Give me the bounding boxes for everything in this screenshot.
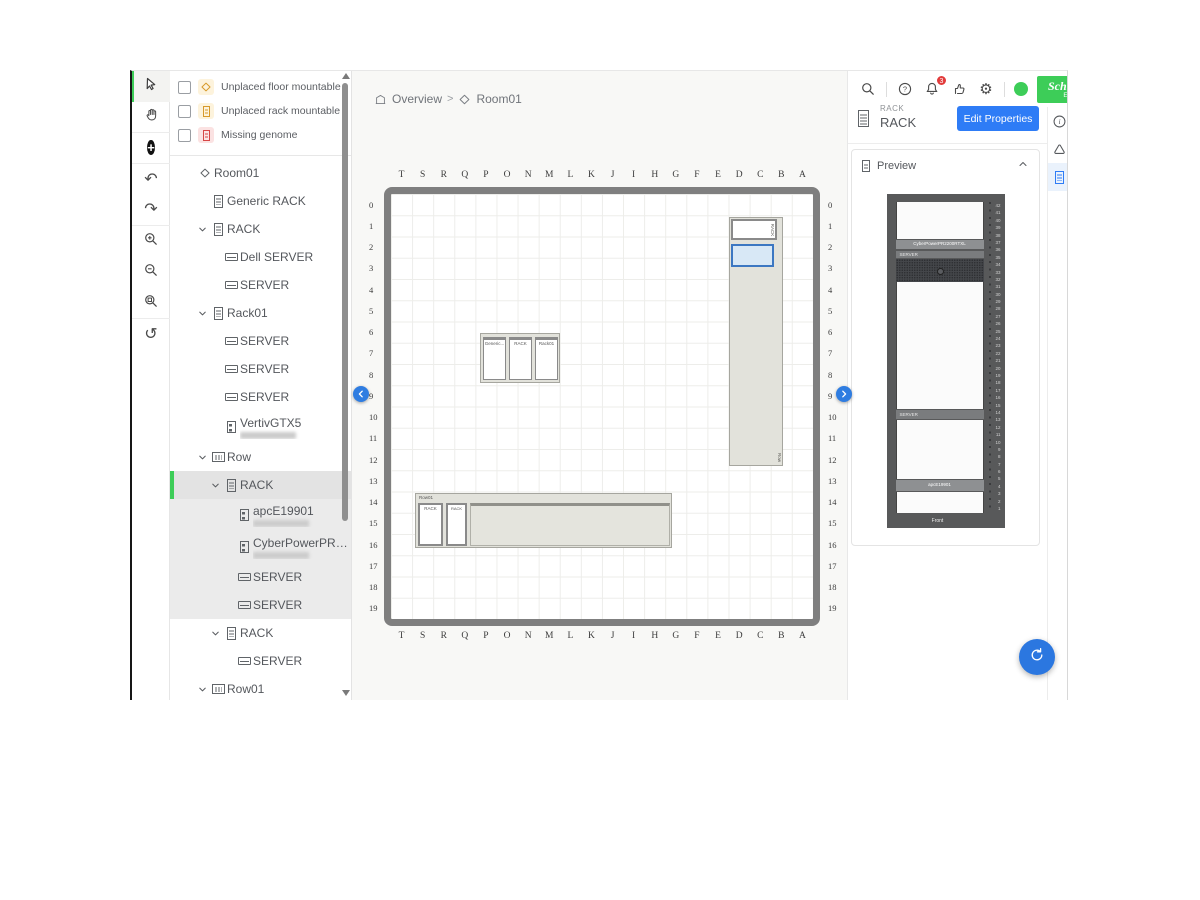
tree-item-label: Row bbox=[227, 450, 251, 464]
column-label: D bbox=[736, 631, 743, 641]
column-label: J bbox=[611, 170, 615, 180]
u-number: 10 bbox=[989, 439, 1002, 446]
tree-item[interactable]: Rack01 bbox=[170, 299, 351, 327]
tree-item-label: SERVER bbox=[240, 278, 289, 292]
hand-icon bbox=[144, 107, 159, 127]
row-label: 1 bbox=[828, 221, 832, 231]
row-label: 5 bbox=[828, 306, 832, 316]
column-label: Q bbox=[461, 170, 468, 180]
u-number: 19 bbox=[989, 372, 1002, 379]
column-label: H bbox=[651, 631, 658, 641]
tree-item-label: Dell SERVER bbox=[240, 250, 313, 264]
column-label: R bbox=[441, 170, 447, 180]
u-number: 1 bbox=[989, 505, 1002, 512]
tree-item[interactable]: CyberPowerPR2200R... bbox=[170, 531, 351, 563]
row-label: 14 bbox=[369, 497, 378, 507]
left-toolbar: +↶↷↺ bbox=[132, 71, 170, 700]
u-number: 42 bbox=[989, 202, 1002, 209]
u-number: 39 bbox=[989, 224, 1002, 231]
selected-name: RACK bbox=[880, 115, 916, 130]
u-number: 38 bbox=[989, 232, 1002, 239]
u-number: 24 bbox=[989, 335, 1002, 342]
server-icon bbox=[235, 657, 253, 665]
row-label: 2 bbox=[828, 242, 832, 252]
u-number: 3 bbox=[989, 490, 1002, 497]
u-number: 30 bbox=[989, 291, 1002, 298]
zoom-fit-button[interactable] bbox=[132, 288, 170, 319]
column-label: I bbox=[632, 170, 635, 180]
filter-row: Missing genome bbox=[170, 123, 351, 147]
tree-item-label: Generic RACK bbox=[227, 194, 306, 208]
row-label: 11 bbox=[828, 433, 836, 443]
logo-text: Schneider bbox=[1048, 80, 1068, 92]
row-object-bottom[interactable]: Row01 RACK RACK bbox=[415, 493, 672, 548]
u-number: 8 bbox=[989, 453, 1002, 460]
divider bbox=[170, 155, 351, 156]
server-front-panel bbox=[896, 259, 984, 282]
filter-label: Unplaced rack mountable devices bbox=[221, 105, 343, 117]
rack-empty-space bbox=[896, 420, 984, 479]
notification-badge: 3 bbox=[936, 75, 947, 86]
checkbox[interactable] bbox=[178, 105, 191, 118]
device-server: SERVER bbox=[896, 410, 984, 419]
column-label: K bbox=[588, 631, 595, 641]
server-icon bbox=[235, 573, 253, 581]
tree-item[interactable]: RACK bbox=[170, 471, 351, 499]
breadcrumb: Overview > Room01 bbox=[374, 92, 522, 106]
column-label: O bbox=[504, 170, 511, 180]
sidebar: Unplaced floor mountable devicesUnplaced… bbox=[170, 71, 352, 700]
u-number: 26 bbox=[989, 320, 1002, 327]
row-label: 16 bbox=[369, 540, 378, 550]
u-number: 35 bbox=[989, 254, 1002, 261]
column-label: J bbox=[611, 631, 615, 641]
column-label: Q bbox=[461, 631, 468, 641]
column-label: B bbox=[778, 170, 784, 180]
row-label: 12 bbox=[828, 455, 837, 465]
u-number: 32 bbox=[989, 276, 1002, 283]
row-label: Row01 bbox=[419, 495, 433, 500]
row-label: 7 bbox=[369, 348, 373, 358]
history-button[interactable]: ↺ bbox=[132, 319, 170, 350]
u-number: 4 bbox=[989, 483, 1002, 490]
tree-item-label: SERVER bbox=[240, 390, 289, 404]
row-object-cluster[interactable]: Generic... RACK Rack01 bbox=[480, 333, 560, 383]
tree-item[interactable]: VertivGTX5 bbox=[170, 411, 351, 443]
selected-type-label: RACK bbox=[880, 104, 904, 113]
u-number: 15 bbox=[989, 402, 1002, 409]
u-number: 12 bbox=[989, 424, 1002, 431]
server-icon bbox=[222, 253, 240, 261]
rack-icon bbox=[858, 110, 869, 127]
u-number: 28 bbox=[989, 305, 1002, 312]
tree: Room01Generic RACKRACKDell SERVERSERVERR… bbox=[170, 159, 351, 700]
column-label: A bbox=[799, 170, 806, 180]
row-label: 18 bbox=[828, 582, 837, 592]
row-label: 10 bbox=[369, 412, 378, 422]
tree-item-label: SERVER bbox=[253, 570, 302, 584]
rack-label: Generic... bbox=[484, 341, 505, 346]
row-label: 3 bbox=[369, 263, 373, 273]
row-icon bbox=[209, 452, 227, 462]
rack-empty-space bbox=[896, 492, 984, 513]
u-number: 11 bbox=[989, 431, 1002, 438]
rack-icon bbox=[862, 160, 870, 172]
row-label: Row bbox=[777, 453, 782, 462]
logo-text: Electric bbox=[1063, 92, 1068, 99]
divider bbox=[848, 143, 1047, 144]
gear-icon[interactable]: ⚙ bbox=[977, 80, 995, 98]
tree-item-label: VertivGTX5 bbox=[240, 416, 301, 430]
u-number: 21 bbox=[989, 357, 1002, 364]
filter-label: Unplaced floor mountable devices bbox=[221, 81, 343, 93]
breadcrumb-separator: > bbox=[447, 93, 453, 105]
column-label: A bbox=[799, 631, 806, 641]
u-number: 27 bbox=[989, 313, 1002, 320]
feedback-icon[interactable] bbox=[950, 80, 968, 98]
floor-objects: Row RACK Generic... RACK Rack01 Row01 RA… bbox=[391, 194, 813, 619]
room-icon bbox=[458, 93, 471, 106]
chevron-up-icon[interactable] bbox=[1017, 157, 1029, 175]
row-label: 5 bbox=[369, 306, 373, 316]
filter-row: Unplaced rack mountable devices bbox=[170, 99, 351, 123]
column-label: I bbox=[632, 631, 635, 641]
filter-label: Missing genome bbox=[221, 129, 297, 141]
u-number: 36 bbox=[989, 246, 1002, 253]
chevron-down-icon[interactable] bbox=[195, 450, 209, 464]
column-label: M bbox=[545, 170, 553, 180]
redacted-text bbox=[253, 520, 309, 527]
row-label: 0 bbox=[369, 200, 373, 210]
row-label: 13 bbox=[828, 476, 837, 486]
u-number: 31 bbox=[989, 283, 1002, 290]
select-tool[interactable] bbox=[132, 71, 170, 102]
rack-object[interactable]: Generic... bbox=[483, 337, 506, 380]
row-icon bbox=[209, 684, 227, 694]
avatar[interactable] bbox=[1014, 82, 1028, 96]
u-number: 18 bbox=[989, 379, 1002, 386]
row-label: 9 bbox=[369, 391, 373, 401]
checkbox[interactable] bbox=[178, 129, 191, 142]
u-number: 34 bbox=[989, 261, 1002, 268]
row-label: 4 bbox=[369, 285, 373, 295]
rack-icon bbox=[209, 307, 227, 320]
tree-item-label: SERVER bbox=[253, 598, 302, 612]
column-label: N bbox=[525, 631, 532, 641]
tree-item[interactable]: Room01 bbox=[170, 159, 351, 187]
rack-label: RACK bbox=[770, 223, 775, 236]
tree-item[interactable]: SERVER bbox=[170, 591, 351, 619]
filter-list: Unplaced floor mountable devicesUnplaced… bbox=[170, 75, 351, 147]
help-icon[interactable]: ? bbox=[896, 80, 914, 98]
server-icon bbox=[222, 337, 240, 345]
server-icon bbox=[222, 365, 240, 373]
column-label: M bbox=[545, 631, 553, 641]
ups-icon bbox=[222, 421, 240, 433]
column-label: G bbox=[672, 170, 679, 180]
u-number: 2 bbox=[989, 498, 1002, 505]
topbar: ? 3 ⚙ Schneider Electric bbox=[859, 75, 1068, 103]
zoom-in-button[interactable] bbox=[132, 226, 170, 257]
tree-item[interactable]: SERVER bbox=[170, 563, 351, 591]
chevron-down-icon[interactable] bbox=[208, 626, 222, 640]
sync-icon bbox=[1028, 646, 1046, 669]
column-label: H bbox=[651, 170, 658, 180]
rack-label: RACK bbox=[448, 506, 465, 511]
divider bbox=[1004, 82, 1005, 97]
cursor-icon bbox=[143, 76, 159, 97]
filter-row: Unplaced floor mountable devices bbox=[170, 75, 351, 99]
breadcrumb-room: Room01 bbox=[476, 92, 521, 106]
tree-item-label: RACK bbox=[227, 222, 260, 236]
u-number: 22 bbox=[989, 350, 1002, 357]
row-label: 15 bbox=[369, 518, 378, 528]
rack-u-rail: 4241403938373635343332313029282726252423… bbox=[989, 202, 1002, 513]
column-label: N bbox=[525, 170, 532, 180]
floor-device-icon bbox=[198, 79, 214, 95]
column-label: E bbox=[715, 631, 721, 641]
u-number: 25 bbox=[989, 328, 1002, 335]
row-label: 13 bbox=[369, 476, 378, 486]
row-label: 11 bbox=[369, 433, 377, 443]
row-label: 2 bbox=[369, 242, 373, 252]
missing-genome-icon bbox=[198, 127, 214, 143]
rack-icon bbox=[1055, 171, 1064, 184]
fab-button[interactable] bbox=[1019, 639, 1055, 675]
u-number: 23 bbox=[989, 342, 1002, 349]
scroll-up-icon[interactable] bbox=[342, 73, 350, 79]
row-label: 6 bbox=[369, 327, 373, 337]
tree-item[interactable]: SERVER bbox=[170, 383, 351, 411]
rack-icon bbox=[209, 195, 227, 208]
scrollbar-thumb[interactable] bbox=[342, 83, 348, 521]
row-label: 17 bbox=[828, 561, 837, 571]
undo-icon: ↶ bbox=[144, 171, 157, 189]
tree-item-label: Rack01 bbox=[227, 306, 268, 320]
column-label: S bbox=[420, 631, 425, 641]
ups-icon bbox=[235, 509, 253, 521]
u-number: 29 bbox=[989, 298, 1002, 305]
svg-text:?: ? bbox=[903, 85, 907, 94]
redo-icon: ↷ bbox=[144, 201, 157, 219]
alarm-icon[interactable] bbox=[1048, 135, 1068, 163]
undo-button[interactable]: ↶ bbox=[132, 164, 170, 195]
row-label: 3 bbox=[828, 263, 832, 273]
chevron-down-icon[interactable] bbox=[195, 222, 209, 236]
row-label: 7 bbox=[828, 348, 832, 358]
chevron-down-icon[interactable] bbox=[195, 682, 209, 696]
tree-item[interactable]: Row bbox=[170, 443, 351, 471]
rack-label: RACK bbox=[510, 341, 531, 346]
tree-item[interactable]: SERVER bbox=[170, 327, 351, 355]
redacted-text bbox=[240, 432, 296, 439]
breadcrumb-overview[interactable]: Overview bbox=[392, 92, 442, 106]
u-number: 5 bbox=[989, 475, 1002, 482]
zoom-in-icon bbox=[143, 231, 159, 252]
column-label: B bbox=[778, 631, 784, 641]
rack-object[interactable]: RACK bbox=[446, 503, 467, 546]
tree-item-label: RACK bbox=[240, 478, 273, 492]
tree-item[interactable]: Dell SERVER bbox=[170, 243, 351, 271]
tree-item[interactable]: SERVER bbox=[170, 647, 351, 675]
svg-text:i: i bbox=[1058, 117, 1060, 126]
column-label: S bbox=[420, 170, 425, 180]
u-number: 33 bbox=[989, 269, 1002, 276]
zoom-fit-icon bbox=[143, 293, 159, 314]
row-label: 8 bbox=[828, 370, 832, 380]
history-icon: ↺ bbox=[144, 326, 157, 344]
device-cyberpower: CyberPowerPR2200RTXL bbox=[896, 240, 984, 250]
tree-item-label: apcE19901 bbox=[253, 504, 314, 518]
u-number: 17 bbox=[989, 387, 1002, 394]
ups-icon bbox=[235, 541, 253, 553]
row-label: 12 bbox=[369, 455, 378, 465]
front-label: Front bbox=[887, 518, 989, 524]
column-label: L bbox=[567, 170, 573, 180]
rack-object[interactable]: Rack01 bbox=[535, 337, 558, 380]
tree-item[interactable]: RACK bbox=[170, 215, 351, 243]
row-label: 16 bbox=[828, 540, 837, 550]
column-label: C bbox=[757, 170, 763, 180]
chevron-down-icon[interactable] bbox=[195, 306, 209, 320]
chevron-down-icon[interactable] bbox=[208, 478, 222, 492]
rack-panel-tab[interactable] bbox=[1048, 163, 1068, 191]
tree-item[interactable]: apcE19901 bbox=[170, 499, 351, 531]
row-label: 8 bbox=[369, 370, 373, 380]
server-icon bbox=[222, 393, 240, 401]
rack-icon bbox=[209, 223, 227, 236]
row-label: 1 bbox=[369, 221, 373, 231]
collapse-right-panel-button[interactable] bbox=[836, 386, 852, 402]
column-label: F bbox=[694, 631, 699, 641]
rack-label: Rack01 bbox=[536, 341, 557, 346]
u-number: 16 bbox=[989, 394, 1002, 401]
column-label: O bbox=[504, 631, 511, 641]
tree-item[interactable]: SERVER bbox=[170, 355, 351, 383]
column-label: P bbox=[483, 631, 488, 641]
row-label: 17 bbox=[369, 561, 378, 571]
rack-device-icon bbox=[198, 103, 214, 119]
overview-icon[interactable] bbox=[374, 93, 387, 106]
tree-item-label: RACK bbox=[240, 626, 273, 640]
tree-item-label: SERVER bbox=[253, 654, 302, 668]
tree-item-label: SERVER bbox=[240, 334, 289, 348]
row-label: 6 bbox=[828, 327, 832, 337]
u-number: 6 bbox=[989, 468, 1002, 475]
column-label: G bbox=[672, 631, 679, 641]
redo-button[interactable]: ↷ bbox=[132, 195, 170, 226]
u-number: 40 bbox=[989, 217, 1002, 224]
edit-properties-button[interactable]: Edit Properties bbox=[957, 106, 1039, 131]
row-label: 19 bbox=[369, 603, 378, 613]
column-label: P bbox=[483, 170, 488, 180]
rack-empty-space bbox=[896, 202, 984, 239]
rack-label: RACK bbox=[420, 506, 441, 511]
rack-icon bbox=[222, 479, 240, 492]
column-label: C bbox=[757, 631, 763, 641]
right-icon-rail: i bbox=[1047, 107, 1068, 700]
tree-item[interactable]: SERVER bbox=[170, 271, 351, 299]
device-server: SERVER bbox=[896, 251, 984, 258]
properties-panel: RACK RACK Edit Properties Preview CyberP… bbox=[847, 71, 1047, 700]
floor-canvas[interactable]: Overview > Room01 Row RACK Generic... RA… bbox=[352, 71, 847, 700]
rack-object[interactable]: RACK bbox=[509, 337, 532, 380]
row-label: 9 bbox=[828, 391, 832, 401]
column-label: E bbox=[715, 170, 721, 180]
column-label: T bbox=[399, 631, 405, 641]
rack-preview-image: CyberPowerPR2200RTXL SERVER SERVER apcE1… bbox=[887, 194, 1005, 528]
pan-tool[interactable] bbox=[132, 102, 170, 133]
room-icon bbox=[196, 167, 214, 179]
preview-card: Preview CyberPowerPR2200RTXL SERVER SERV… bbox=[851, 149, 1040, 546]
app-window: +↶↷↺ Unplaced floor mountable devicesUnp… bbox=[130, 70, 1068, 700]
row-empty-space[interactable] bbox=[470, 503, 670, 546]
rack-icon bbox=[222, 627, 240, 640]
tree-item[interactable]: Generic RACK bbox=[170, 187, 351, 215]
server-icon bbox=[235, 601, 253, 609]
u-number: 37 bbox=[989, 239, 1002, 246]
column-label: R bbox=[441, 631, 447, 641]
row-label: 10 bbox=[828, 412, 837, 422]
rack-object-selected[interactable] bbox=[731, 244, 774, 267]
search-icon[interactable] bbox=[859, 80, 877, 98]
add-device-button[interactable]: + bbox=[132, 133, 170, 164]
plus-circle-icon: + bbox=[147, 139, 155, 157]
tree-item-label: CyberPowerPR2200R... bbox=[253, 536, 351, 550]
tree-item-label: SERVER bbox=[240, 362, 289, 376]
checkbox[interactable] bbox=[178, 81, 191, 94]
row-label: 18 bbox=[369, 582, 378, 592]
tree-item[interactable]: Row01 bbox=[170, 675, 351, 700]
zoom-out-button[interactable] bbox=[132, 257, 170, 288]
column-label: L bbox=[567, 631, 573, 641]
u-number: 14 bbox=[989, 409, 1002, 416]
tree-item-label: Row01 bbox=[227, 682, 264, 696]
schneider-logo[interactable]: Schneider Electric bbox=[1037, 76, 1068, 103]
column-label: F bbox=[694, 170, 699, 180]
tree-item-label: Room01 bbox=[214, 166, 259, 180]
u-number: 41 bbox=[989, 209, 1002, 216]
u-number: 9 bbox=[989, 446, 1002, 453]
u-number: 20 bbox=[989, 365, 1002, 372]
rack-object[interactable]: RACK bbox=[418, 503, 443, 546]
tree-scrollbar[interactable] bbox=[341, 71, 350, 698]
zoom-out-icon bbox=[143, 262, 159, 283]
rack-empty-space bbox=[896, 282, 984, 409]
bell-icon[interactable]: 3 bbox=[923, 80, 941, 98]
row-label: 14 bbox=[828, 497, 837, 507]
tree-item[interactable]: RACK bbox=[170, 619, 351, 647]
info-icon[interactable]: i bbox=[1048, 107, 1068, 135]
column-label: T bbox=[399, 170, 405, 180]
scroll-down-icon[interactable] bbox=[342, 690, 350, 696]
column-label: K bbox=[588, 170, 595, 180]
column-label: D bbox=[736, 170, 743, 180]
preview-title: Preview bbox=[877, 160, 1010, 172]
collapse-left-panel-button[interactable] bbox=[353, 386, 369, 402]
server-icon bbox=[222, 281, 240, 289]
u-number: 13 bbox=[989, 416, 1002, 423]
row-label: 0 bbox=[828, 200, 832, 210]
rack-object-top[interactable]: RACK bbox=[731, 219, 777, 240]
redacted-text bbox=[253, 552, 309, 559]
row-label: 19 bbox=[828, 603, 837, 613]
divider bbox=[886, 82, 887, 97]
row-label: 15 bbox=[828, 518, 837, 528]
row-label: 4 bbox=[828, 285, 832, 295]
device-apc: apcE19901 bbox=[896, 480, 984, 491]
u-number: 7 bbox=[989, 461, 1002, 468]
